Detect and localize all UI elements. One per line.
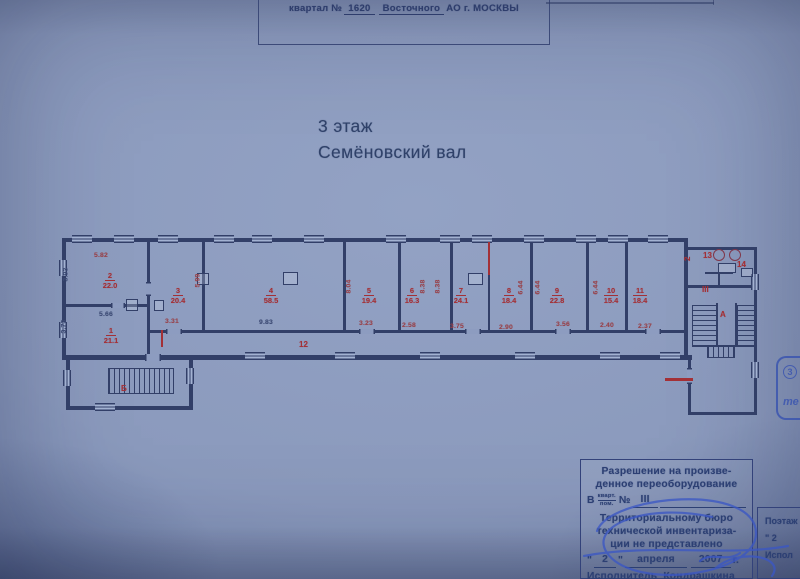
shaft-box [718,263,736,273]
window-marker [648,235,668,243]
room-area: 20.4 [156,296,200,305]
table-rule-line [546,2,714,4]
kvart-pom-fraction: кварт.пом. [598,493,616,507]
mark-2-label: 2 [683,245,693,261]
stamp-floor-number: 3 [783,365,797,379]
room-area: 22.0 [88,281,132,290]
header-district: Восточного [379,3,445,15]
room-label: 1118.4 [618,286,662,303]
executor-name: Кондрашкина [663,570,735,579]
date-row: " 2 " апреля 2007 г. [587,553,746,567]
door-opening [111,303,125,308]
wall [688,285,757,288]
side-note-line-1: Поэтаж [765,513,800,530]
fraction-top: кварт. [598,493,616,501]
dimension-label: 6.44 [518,273,527,303]
room-number: 11 [633,286,647,296]
adjacent-note-box: Поэтаж " 2 Испол [757,507,800,579]
dimension-label: 2.58 [394,322,424,331]
side-note-line-2: " 2 [765,530,800,547]
side-note-line-3: Испол [765,547,800,564]
room-number: 7 [456,286,466,296]
dimension-label: 5.66 [91,311,121,320]
window-marker [214,235,234,243]
room-number: 3 [173,286,183,296]
room-area: 21.1 [89,336,133,345]
room-label: 320.4 [156,286,200,303]
apartment-number-label: III [702,285,718,295]
blank-line [660,507,746,508]
room-label: 222.0 [88,271,132,288]
stair-flight [737,305,755,347]
dimension-label: 2.40 [592,322,622,331]
dimension-label: 3.56 [548,321,578,330]
window-marker [304,235,324,243]
permit-line-5: технической инвентариза- [587,525,746,538]
red-mark [488,242,490,275]
corridor-label: 12 [299,340,315,350]
dimension-label: 3.75 [442,323,472,332]
room-area: 24.1 [439,296,483,305]
staircase-b-label: Б [121,384,137,394]
room-number: 10 [604,286,618,296]
window-marker [63,370,71,386]
date-year-suffix: г. [733,554,740,567]
dimension-label: 6.44 [535,273,544,303]
door-opening [146,282,151,296]
room-area: 58.5 [249,296,293,305]
room-number: 2 [105,271,115,281]
date-month: апреля [625,553,687,567]
staircase-a-label: А [720,310,736,320]
room-13-label: 13 [703,251,719,261]
date-year: 2007 [691,553,731,567]
permit-line-4: Территориальному бюро [587,512,746,525]
window-marker [95,403,115,411]
dimension-label: 8.38 [435,272,444,302]
shaft-box [126,299,138,311]
number-sign: № [619,494,631,507]
dimension-label: 3.31 [157,318,187,327]
room-label: 121.1 [89,326,133,343]
room-number: 9 [552,286,562,296]
dimension-label: 8.38 [420,272,429,302]
room-number: 4 [266,286,276,296]
dimension-label: 5.82 [86,252,116,261]
window-marker [386,235,406,243]
executor-label: Исполнитель [587,570,657,579]
header-prefix: квартал № [289,3,342,14]
window-marker [608,235,628,243]
executor-row: Исполнитель Кондрашкина [587,570,746,579]
permit-line-6: ции не представлено [587,538,746,551]
door-opening [687,368,692,384]
shaft-box [283,272,298,285]
header-suffix: АО г. МОСКВЫ [446,3,519,14]
permit-note-box: Разрешение на произве- денное переоборуд… [580,459,753,579]
door-opening [359,329,375,334]
plan-title: 3 этаж Семёновский вал [318,113,467,166]
window-marker [751,362,759,378]
window-marker [515,352,535,360]
room-label: 458.5 [249,286,293,303]
window-marker [186,368,194,384]
room-number: 5 [364,286,374,296]
dimension-label: 3.93 [63,260,72,290]
apartment-row: В кварт.пом. № III [587,493,746,507]
dimension-label: 2.90 [491,324,521,333]
wall [147,242,150,355]
dimension-label: 3.73 [61,312,70,342]
quote-open: " [587,554,592,567]
scanned-floorplan-photo: квартал №1620ВосточногоАО г. МОСКВЫ 3 эт… [0,0,800,579]
wall [66,406,193,410]
stair-flight [692,305,717,347]
dimension-label: 8.04 [346,272,355,302]
window-marker [440,235,460,243]
red-mark [161,330,163,347]
window-marker [576,235,596,243]
apartment-value: III [633,493,658,507]
stair-flight [108,368,174,394]
dimension-label: 2.37 [630,323,660,332]
wall [688,412,757,415]
window-marker [72,235,92,243]
street-title: Семёновский вал [318,139,467,165]
quote-close: " [618,554,623,567]
header-box: квартал №1620ВосточногоАО г. МОСКВЫ [258,0,550,45]
room-area: 18.4 [618,296,662,305]
floor-plan: 121.1222.0320.4458.5519.4616.3724.1818.4… [55,230,767,422]
fraction-bottom: пом. [598,501,616,508]
room-label: 724.1 [439,286,483,303]
floor-stamp: 3 те [776,356,800,420]
door-opening [166,329,182,334]
permit-line-2: денное переоборудование [587,478,746,491]
permit-in-label: В [587,494,595,507]
room-number: 1 [106,326,116,336]
dimension-label: 3.23 [351,320,381,329]
room-number: 6 [407,286,417,296]
room-number: 8 [504,286,514,296]
stamp-text: те [783,396,800,408]
window-marker [420,352,440,360]
stair-flight [707,346,735,358]
window-marker [158,235,178,243]
date-day: 2 [594,553,616,567]
window-marker [252,235,272,243]
room-14-label: 14 [737,260,753,270]
wall [718,272,720,285]
red-mark [665,378,693,381]
window-marker [335,352,355,360]
window-marker [524,235,544,243]
window-marker [245,352,265,360]
window-marker [114,235,134,243]
permit-line-1: Разрешение на произве- [587,465,746,478]
header-block-number: 1620 [344,3,374,15]
shaft-box [468,273,483,285]
dimension-label: 9.83 [251,319,281,328]
window-marker [660,352,680,360]
floor-title: 3 этаж [318,113,467,139]
dimension-label: 6.44 [593,273,602,303]
door-opening [145,354,161,361]
window-marker [600,352,620,360]
dimension-label: 5.99 [195,266,204,296]
